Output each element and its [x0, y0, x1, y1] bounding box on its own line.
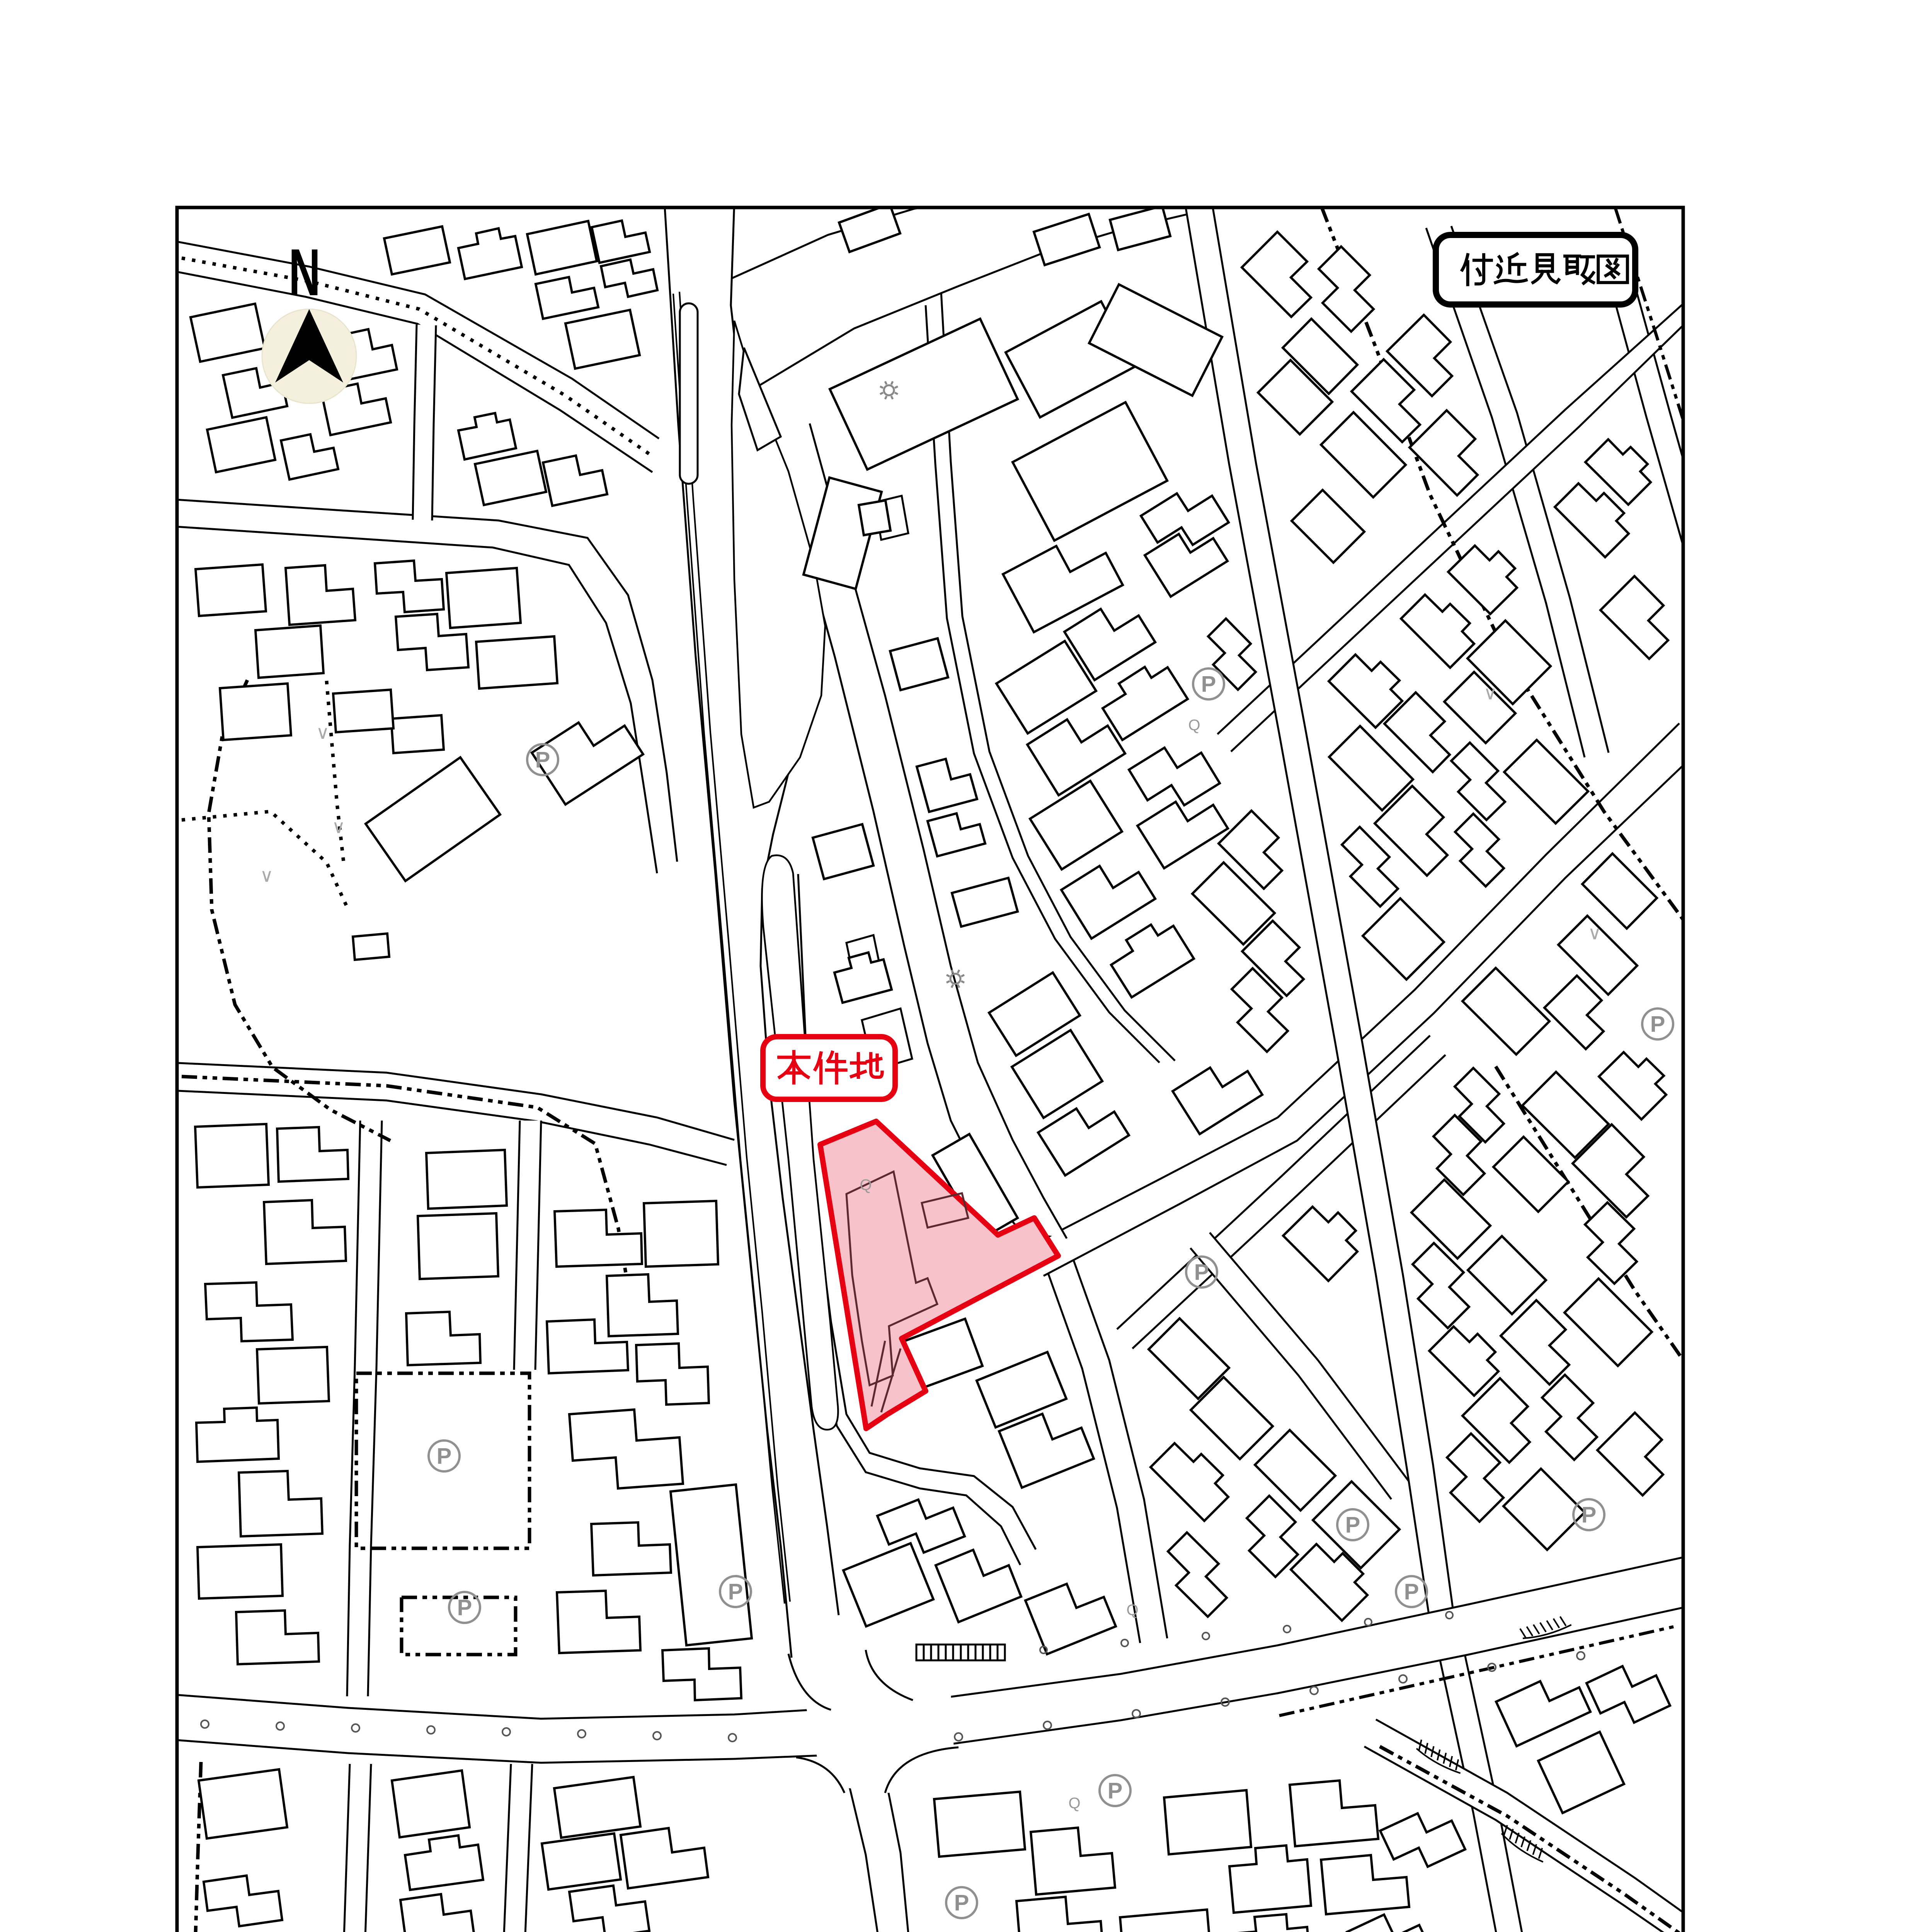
svg-text:P: P — [1650, 1012, 1665, 1037]
svg-text:P: P — [1194, 1260, 1209, 1285]
svg-text:P: P — [457, 1595, 472, 1620]
svg-text:Q: Q — [860, 1177, 872, 1194]
svg-text:Q: Q — [1126, 1602, 1138, 1619]
svg-text:P: P — [535, 747, 550, 772]
svg-text:P: P — [1404, 1579, 1419, 1604]
svg-text:P: P — [437, 1444, 452, 1469]
svg-text:Q: Q — [1068, 1795, 1080, 1812]
svg-text:P: P — [1201, 672, 1216, 697]
svg-text:P: P — [1108, 1778, 1123, 1803]
svg-text:P: P — [954, 1890, 969, 1915]
svg-text:P: P — [1582, 1502, 1597, 1527]
svg-text:P: P — [1345, 1512, 1360, 1537]
svg-text:∨: ∨ — [1483, 683, 1497, 704]
svg-text:∨: ∨ — [316, 723, 329, 743]
svg-text:Q: Q — [1188, 717, 1200, 734]
svg-text:∨: ∨ — [1588, 923, 1601, 944]
svg-text:∨: ∨ — [332, 817, 345, 837]
svg-text:P: P — [728, 1579, 743, 1604]
svg-text:N: N — [289, 235, 320, 309]
svg-text:∨: ∨ — [260, 866, 273, 886]
